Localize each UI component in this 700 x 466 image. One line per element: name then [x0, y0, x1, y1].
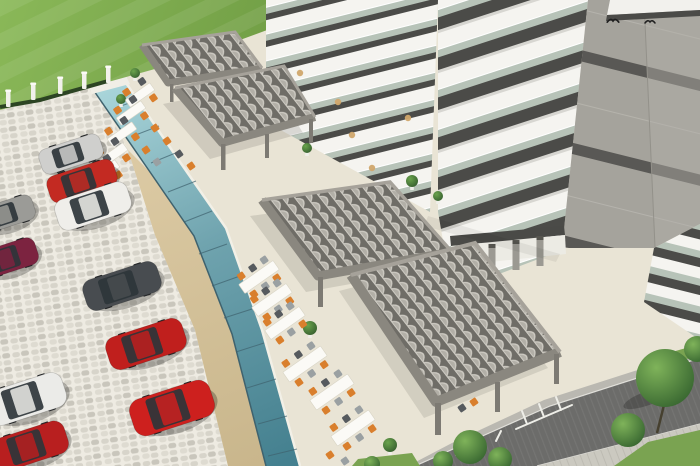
pergola-post [309, 119, 313, 143]
pergola-post [435, 403, 441, 435]
balcony-parasol [349, 132, 355, 138]
fence-post [58, 78, 63, 94]
fence-post [82, 73, 87, 89]
fence-post-cap [30, 83, 36, 86]
balcony-parasol [297, 70, 303, 76]
scene-svg [0, 0, 700, 466]
column-cap [537, 236, 544, 240]
fence-post [106, 67, 111, 83]
fence-post [31, 84, 36, 100]
pergola-post [170, 84, 174, 102]
pergola-post [265, 134, 269, 158]
tree [611, 413, 645, 447]
fence-post [6, 91, 11, 107]
pergola-post [495, 382, 500, 412]
pergola-post [221, 144, 226, 170]
fence-post-cap [105, 66, 111, 69]
tree [453, 430, 487, 464]
pergola-post [554, 354, 559, 384]
architectural-rendering [0, 0, 700, 466]
balcony-parasol [335, 99, 341, 105]
pergola-post [318, 277, 323, 307]
balcony-parasol [405, 115, 411, 121]
fence-post-cap [5, 90, 11, 93]
fence-post-cap [81, 72, 87, 75]
fence-post-cap [57, 77, 63, 80]
balcony-parasol [369, 165, 375, 171]
